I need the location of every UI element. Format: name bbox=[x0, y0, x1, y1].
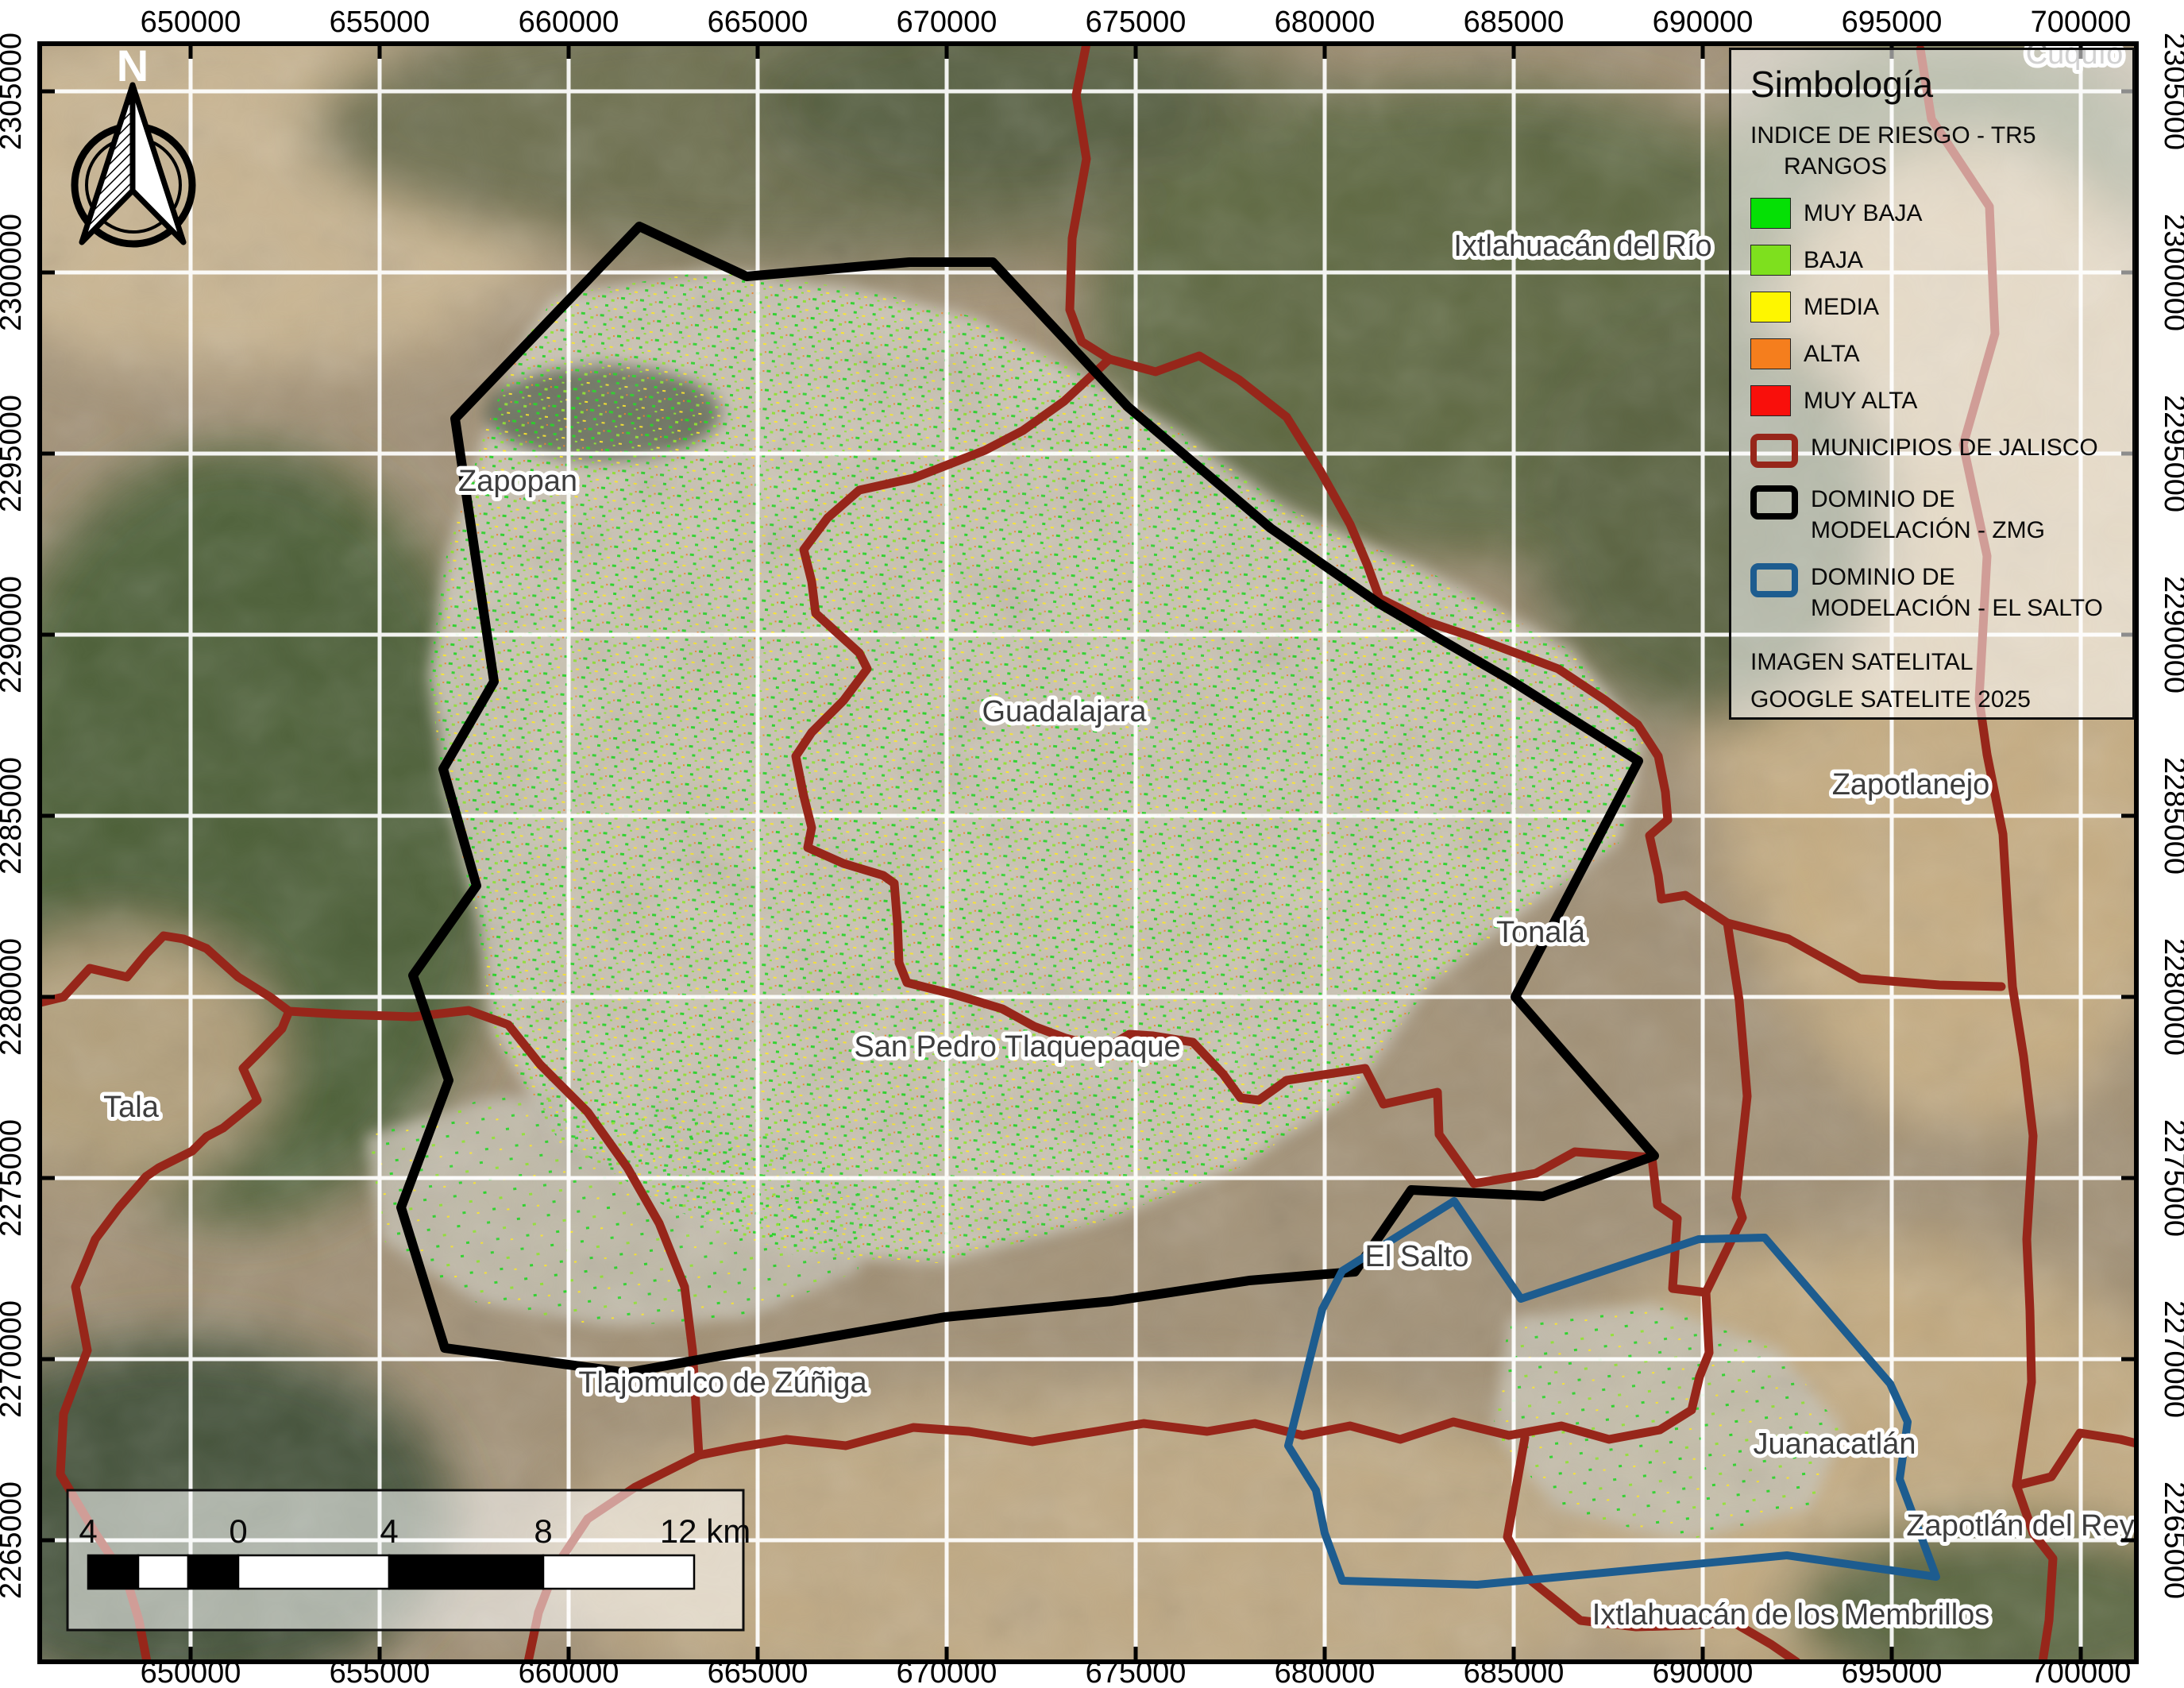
legend-item-label: MUNICIPIOS DE JALISCO bbox=[1811, 432, 2098, 463]
x-label-bottom-700000: 700000 bbox=[2031, 1656, 2132, 1688]
x-label-top-655000: 655000 bbox=[330, 6, 430, 39]
scalebar-label-0: 4 bbox=[79, 1512, 97, 1550]
x-label-bottom-655000: 655000 bbox=[330, 1656, 430, 1688]
legend-swatch-media bbox=[1750, 292, 1791, 323]
legend-line-swatch-municipios-de-jalisco bbox=[1750, 434, 1798, 468]
scalebar-segment-2 bbox=[188, 1555, 238, 1589]
scalebar-label-2: 4 bbox=[380, 1512, 398, 1550]
city-label-el-salto: El Salto bbox=[1365, 1240, 1469, 1273]
x-label-top-700000: 700000 bbox=[2031, 6, 2132, 39]
scalebar: 404812 km bbox=[68, 1490, 751, 1630]
y-label-right-2270000: 2270000 bbox=[2158, 1300, 2184, 1418]
x-label-bottom-650000: 650000 bbox=[141, 1656, 241, 1688]
y-label-left-2305000: 2305000 bbox=[0, 33, 28, 150]
city-label-san-pedro-tlaquepaque: San Pedro Tlaquepaque bbox=[854, 1030, 1180, 1064]
city-label-ixtlahuacan-del-rio: Ixtlahuacán del Río bbox=[1453, 230, 1711, 263]
city-label-zapotlan-del-rey: Zapotlán del Rey bbox=[1906, 1509, 2134, 1543]
y-label-left-2270000: 2270000 bbox=[0, 1300, 28, 1418]
y-label-right-2305000: 2305000 bbox=[2158, 33, 2184, 150]
x-label-bottom-680000: 680000 bbox=[1275, 1656, 1376, 1688]
city-label-juanacatlan: Juanacatlán bbox=[1754, 1427, 1916, 1461]
y-label-right-2295000: 2295000 bbox=[2158, 395, 2184, 512]
scalebar-segment-3 bbox=[238, 1555, 389, 1589]
legend-group-title-line1: INDICE DE RIESGO - TR5 bbox=[1750, 120, 2115, 151]
map-layout: ZapopanIxtlahuacán del RíoCuquíoGuadalaj… bbox=[0, 0, 2184, 1688]
legend-item-label: MUY BAJA bbox=[1804, 198, 1923, 229]
x-label-bottom-695000: 695000 bbox=[1842, 1656, 1943, 1688]
scalebar-segment-1 bbox=[138, 1555, 188, 1589]
legend-line-swatch-dominio-de-modelacion-el-salto bbox=[1750, 563, 1798, 597]
legend-line-layers: MUNICIPIOS DE JALISCODOMINIO DE MODELACI… bbox=[1750, 432, 2115, 624]
y-label-right-2285000: 2285000 bbox=[2158, 757, 2184, 875]
legend-item-label: MEDIA bbox=[1804, 292, 1879, 323]
x-label-bottom-690000: 690000 bbox=[1653, 1656, 1754, 1688]
x-label-bottom-670000: 670000 bbox=[897, 1656, 997, 1688]
x-label-bottom-660000: 660000 bbox=[519, 1656, 619, 1688]
city-label-tlajomulco-de-zuniga: Tlajomulco de Zúñiga bbox=[578, 1366, 867, 1400]
city-label-ixtlahuacan-de-los-membrillos: Ixtlahuacán de los Membrillos bbox=[1592, 1598, 1990, 1632]
x-label-top-665000: 665000 bbox=[708, 6, 808, 39]
legend-swatch-muy-baja bbox=[1750, 198, 1791, 229]
legend-item-municipios-de-jalisco: MUNICIPIOS DE JALISCO bbox=[1750, 432, 2115, 468]
x-label-top-680000: 680000 bbox=[1275, 6, 1376, 39]
scalebar-segment-4 bbox=[389, 1555, 543, 1589]
scalebar-label-3: 8 bbox=[534, 1512, 552, 1550]
scalebar-segment-0 bbox=[88, 1555, 138, 1589]
city-label-tala: Tala bbox=[103, 1091, 160, 1124]
x-label-bottom-675000: 675000 bbox=[1086, 1656, 1187, 1688]
legend-swatch-muy-alta bbox=[1750, 385, 1791, 416]
city-label-zapotlanejo: Zapotlanejo bbox=[1832, 768, 1990, 802]
y-label-left-2300000: 2300000 bbox=[0, 214, 28, 331]
y-label-left-2285000: 2285000 bbox=[0, 757, 28, 875]
legend-item-muy-baja: MUY BAJA bbox=[1750, 198, 2115, 229]
city-label-zapopan: Zapopan bbox=[458, 465, 577, 498]
legend-swatch-alta bbox=[1750, 338, 1791, 369]
legend-item-baja: BAJA bbox=[1750, 245, 2115, 276]
legend-line-swatch-dominio-de-modelacion-zmg bbox=[1750, 485, 1798, 520]
legend-item-media: MEDIA bbox=[1750, 292, 2115, 323]
x-label-bottom-665000: 665000 bbox=[708, 1656, 808, 1688]
legend-item-muy-alta: MUY ALTA bbox=[1750, 385, 2115, 416]
x-label-top-675000: 675000 bbox=[1086, 6, 1187, 39]
x-label-bottom-685000: 685000 bbox=[1464, 1656, 1565, 1688]
legend-item-label: ALTA bbox=[1804, 338, 1860, 369]
x-label-top-695000: 695000 bbox=[1842, 6, 1943, 39]
y-label-right-2275000: 2275000 bbox=[2158, 1119, 2184, 1237]
scalebar-label-4: 12 km bbox=[660, 1512, 751, 1550]
x-label-top-690000: 690000 bbox=[1653, 6, 1754, 39]
y-label-right-2265000: 2265000 bbox=[2158, 1481, 2184, 1599]
legend-item-dominio-de-modelacion-el-salto: DOMINIO DE MODELACIÓN - EL SALTO bbox=[1750, 562, 2115, 624]
legend-item-label: MUY ALTA bbox=[1804, 385, 1917, 416]
legend-group-title-line2: RANGOS bbox=[1784, 151, 2115, 182]
city-label-guadalajara: Guadalajara bbox=[982, 695, 1147, 728]
legend-swatch-baja bbox=[1750, 245, 1791, 276]
legend-note-line-0: IMAGEN SATELITAL bbox=[1750, 644, 2115, 682]
legend-item-label: BAJA bbox=[1804, 245, 1863, 276]
y-label-right-2300000: 2300000 bbox=[2158, 214, 2184, 331]
x-label-top-670000: 670000 bbox=[897, 6, 997, 39]
legend-title: Simbología bbox=[1750, 63, 2115, 106]
y-label-right-2280000: 2280000 bbox=[2158, 938, 2184, 1056]
y-label-left-2265000: 2265000 bbox=[0, 1481, 28, 1599]
y-label-left-2295000: 2295000 bbox=[0, 395, 28, 512]
legend-note-line-1: GOOGLE SATELITE 2025 bbox=[1750, 682, 2115, 719]
x-label-top-660000: 660000 bbox=[519, 6, 619, 39]
legend-item-label: DOMINIO DE MODELACIÓN - EL SALTO bbox=[1811, 562, 2113, 624]
legend-group-title: INDICE DE RIESGO - TR5 RANGOS bbox=[1750, 120, 2115, 182]
legend-panel: Simbología INDICE DE RIESGO - TR5 RANGOS… bbox=[1729, 48, 2135, 720]
x-label-top-685000: 685000 bbox=[1464, 6, 1565, 39]
scalebar-segment-5 bbox=[543, 1555, 694, 1589]
y-label-left-2275000: 2275000 bbox=[0, 1119, 28, 1237]
north-arrow-letter: N bbox=[117, 41, 149, 91]
scalebar-label-1: 0 bbox=[229, 1512, 247, 1550]
legend-risk-classes: MUY BAJABAJAMEDIAALTAMUY ALTA bbox=[1750, 198, 2115, 416]
legend-item-alta: ALTA bbox=[1750, 338, 2115, 369]
y-label-left-2280000: 2280000 bbox=[0, 938, 28, 1056]
y-label-right-2290000: 2290000 bbox=[2158, 576, 2184, 693]
legend-item-label: DOMINIO DE MODELACIÓN - ZMG bbox=[1811, 484, 2113, 546]
legend-item-dominio-de-modelacion-zmg: DOMINIO DE MODELACIÓN - ZMG bbox=[1750, 484, 2115, 546]
x-label-top-650000: 650000 bbox=[141, 6, 241, 39]
legend-source-note: IMAGEN SATELITALGOOGLE SATELITE 2025 bbox=[1750, 644, 2115, 718]
city-label-tonala: Tonalá bbox=[1496, 916, 1586, 949]
y-label-left-2290000: 2290000 bbox=[0, 576, 28, 693]
